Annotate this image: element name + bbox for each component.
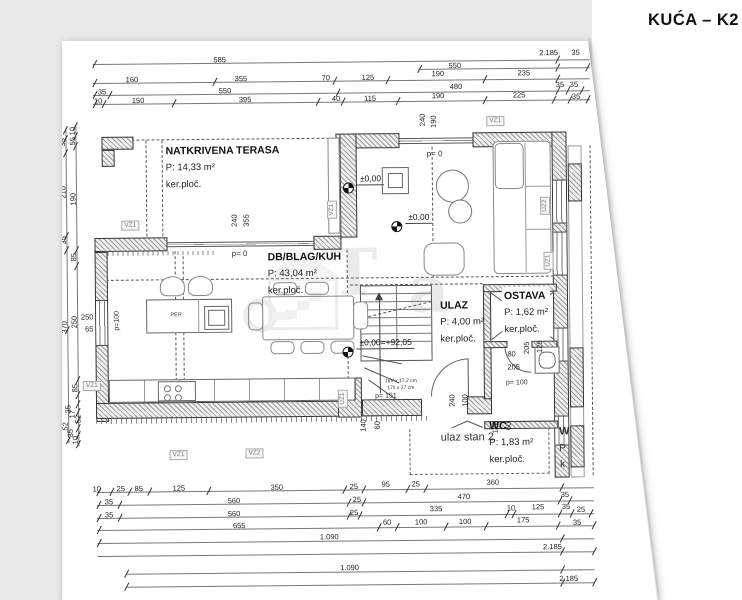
- dim-label: 95: [48, 254, 57, 262]
- room-area: P: 14,33 m²: [166, 160, 280, 178]
- dim-label: 355: [242, 214, 251, 227]
- door-leaf: [468, 358, 469, 396]
- wall-segment: [569, 347, 584, 407]
- dim-label: 40: [332, 94, 340, 103]
- dim-label: 25: [350, 508, 358, 517]
- room-name: NATKRIVENA TERASA: [165, 141, 279, 160]
- stove-burner: [164, 394, 171, 401]
- dim-tick: [43, 484, 48, 492]
- dim-label: 35: [556, 80, 564, 89]
- dining-table: [262, 296, 354, 341]
- dim-label: 190: [432, 91, 445, 100]
- dim-label: 100: [415, 517, 428, 526]
- dim-label: 125: [362, 73, 375, 82]
- dim-label: 240: [418, 114, 427, 127]
- annotation: 16V x 17,2 cm: [385, 378, 417, 384]
- drawing-page: T a 5852.1853555016035570125190235355504…: [0, 0, 742, 600]
- room-name: WC: [489, 417, 533, 436]
- dining-chair: [248, 302, 263, 330]
- stove-burner: [175, 394, 182, 401]
- dim-label: 160: [126, 75, 139, 84]
- dimension-line: [97, 500, 594, 506]
- dim-label: 175: [517, 515, 530, 524]
- annotation: p= 0: [427, 149, 443, 158]
- dim-label: 25: [353, 495, 361, 504]
- dim-tick: [54, 395, 59, 403]
- dimension-line: [97, 551, 594, 557]
- dim-label: 140: [359, 419, 368, 432]
- dimension-line: [93, 78, 590, 84]
- room-area: P: 1,83 m²: [489, 435, 533, 452]
- dimension-line: [97, 538, 594, 544]
- dim-label: 70: [322, 73, 330, 82]
- dim-label: 35: [571, 48, 579, 57]
- dim-label: 85: [70, 384, 79, 392]
- dimension-line: [93, 59, 590, 65]
- dim-label: 180: [36, 197, 45, 210]
- dim-tick: [40, 126, 45, 134]
- sofa-chaise: [495, 143, 524, 189]
- dim-label: 150: [132, 96, 145, 105]
- annotation: ulaz stan 2: [441, 431, 494, 444]
- dashed-line: [161, 140, 163, 236]
- dim-label: 125: [173, 484, 186, 493]
- footing-ticks: [108, 251, 216, 256]
- dimension-line: [65, 128, 69, 443]
- dim-label: 190: [432, 69, 445, 78]
- dim-label: 65: [85, 325, 93, 334]
- dim-label: 360: [486, 478, 499, 487]
- bar-stool: [188, 276, 213, 296]
- dim-label: 355: [235, 74, 248, 83]
- dim-label: 10: [71, 436, 80, 444]
- room-label: OSTAVAP: 1,62 m²ker.ploč.: [502, 287, 550, 339]
- dim-label: 35: [562, 502, 570, 511]
- dim-label: 550: [448, 61, 461, 70]
- dim-label: 205: [522, 342, 531, 355]
- dim-label: 10: [94, 96, 102, 105]
- room-floor: ker.ploč.: [440, 331, 484, 348]
- annotation: p= 0: [232, 249, 248, 258]
- stove-burner: [164, 385, 171, 392]
- dim-tick: [53, 208, 58, 216]
- wall-segment: [101, 137, 133, 150]
- dim-tick: [32, 486, 37, 494]
- room-floor: ker.ploč.: [268, 283, 342, 300]
- room-label: ULAZP: 4,00 m²ker.ploč.: [440, 296, 484, 348]
- dining-chair: [353, 301, 368, 329]
- window-opening: [96, 300, 107, 346]
- elevation-label: ±0,00=+92,05: [356, 337, 415, 350]
- dim-label: 225: [513, 90, 526, 99]
- dim-tick: [592, 547, 597, 555]
- dining-chair: [270, 341, 294, 354]
- wall-segment: [362, 399, 422, 417]
- fireplace-inner: [388, 173, 403, 188]
- dimension-line: [42, 128, 46, 492]
- dimension-line: [31, 131, 35, 493]
- dim-label: 250: [81, 313, 94, 322]
- room-name: OSTAVA: [504, 287, 548, 306]
- floor-plan: T a 5852.1853555016035570125190235355504…: [0, 0, 742, 600]
- dim-label: 10: [93, 484, 101, 493]
- room-label: WCP: 1,83 m²ker.ploč.: [489, 417, 533, 469]
- annotation: PER: [170, 312, 181, 318]
- dim-label: 2.185: [559, 574, 578, 583]
- room-area: P: 43,04 m²: [268, 266, 342, 283]
- coffee-table: [436, 169, 469, 202]
- wall-segment: [568, 163, 582, 201]
- dim-label: 550: [219, 86, 232, 95]
- dim-label: 2.185: [539, 48, 558, 57]
- wall-type-tag: UZ1: [543, 251, 553, 269]
- annotation: k: [560, 459, 565, 470]
- dim-label: 240: [447, 394, 456, 407]
- dim-tick: [29, 127, 34, 135]
- dim-label: 64: [35, 148, 44, 156]
- wall-type-tag: UZ1: [338, 389, 348, 407]
- elevation-marker: [342, 347, 353, 358]
- dim-tick: [592, 521, 597, 529]
- dim-label: 492: [37, 332, 46, 345]
- wall-type-tag: UZ2: [540, 196, 550, 214]
- wall-segment: [94, 237, 167, 252]
- annotation: p=100: [114, 311, 121, 331]
- wall-segment: [570, 425, 584, 467]
- dim-label: 52: [74, 415, 83, 423]
- dim-label: 80: [507, 349, 515, 358]
- window-glazing: [399, 137, 472, 144]
- stove-burner: [175, 385, 182, 392]
- dim-label: 1.090: [320, 532, 339, 541]
- stair-arrowhead: [375, 292, 383, 300]
- wall-type-tag: VZ1: [83, 381, 101, 391]
- dim-label: 55: [68, 137, 77, 145]
- window-opening: [553, 179, 566, 223]
- dim-label: 100: [460, 394, 469, 407]
- elevation-label: ±0,00: [357, 173, 384, 185]
- room-floor: ker.ploč.: [166, 176, 280, 194]
- dim-label: 100: [459, 517, 472, 526]
- room-floor: ker.ploč.: [504, 322, 548, 339]
- dim-label: 240: [230, 214, 239, 227]
- room-label: NATKRIVENA TERASAP: 14,33 m²ker.ploč.: [165, 141, 279, 194]
- dim-label: 85: [135, 484, 143, 493]
- entry-arrow-left: [451, 421, 467, 429]
- dim-tick: [41, 196, 46, 204]
- sink-basin: [208, 310, 225, 326]
- dim-label: 35: [58, 138, 67, 146]
- page-title: KUĆA – K2: [648, 11, 739, 30]
- dim-label: 115: [364, 94, 376, 103]
- dim-label: 60: [383, 518, 391, 527]
- dimension-line: [127, 582, 595, 587]
- dim-label: 250: [70, 316, 79, 329]
- dim-label: 737: [25, 281, 34, 294]
- dashed-line: [590, 145, 594, 475]
- dim-label: 235: [518, 68, 531, 77]
- dim-label: 35: [561, 490, 569, 499]
- dim-label: 560: [228, 509, 241, 518]
- annotation: p= 151: [375, 393, 397, 400]
- room-area: P: 4,00 m²: [440, 315, 484, 332]
- dim-tick: [52, 163, 57, 171]
- elevation-marker: [391, 221, 402, 232]
- room-area: P: 1,62 m²: [504, 305, 548, 322]
- dim-tick: [52, 126, 57, 134]
- dim-label: 655: [233, 521, 246, 530]
- wall-segment: [102, 150, 115, 167]
- room-name: ULAZ: [440, 296, 484, 315]
- window-opening: [553, 231, 566, 275]
- dashed-line: [101, 138, 339, 141]
- dim-tick: [592, 578, 597, 586]
- dim-label: 35: [105, 510, 113, 519]
- dim-label: 25: [577, 505, 585, 514]
- entry-arrow-right: [467, 420, 483, 427]
- dim-label: 35: [59, 236, 68, 244]
- coffee-table: [448, 199, 472, 223]
- dim-label: 370: [60, 321, 69, 334]
- dim-label: 60: [373, 421, 382, 429]
- annotation: 17š x 27 cm: [387, 385, 414, 391]
- dim-label: 25: [412, 479, 420, 488]
- armchair: [423, 242, 464, 275]
- dim-label: 125: [535, 340, 544, 353]
- dimension-line: [54, 128, 58, 402]
- dim-label: 25: [350, 482, 358, 491]
- dim-label: 190: [429, 115, 438, 128]
- dim-label: 35: [570, 80, 578, 89]
- dim-label: 95: [49, 395, 58, 403]
- screenshot-canvas: T a 5852.1853555016035570125190235355504…: [0, 0, 742, 600]
- dim-label: 95: [382, 480, 390, 489]
- washbasin-bowl: [539, 352, 556, 369]
- elevation-label: ±0,00: [405, 212, 432, 224]
- wall-type-tag: VZ1: [121, 221, 139, 231]
- room-floor: ker.ploč.: [489, 452, 533, 469]
- dim-label: 35: [105, 497, 113, 506]
- dim-label: 190: [68, 193, 77, 206]
- wall-type-tag: VZ1: [327, 201, 337, 219]
- dim-label: 395: [239, 95, 252, 104]
- room-name: DB/BLAG/KUH: [268, 248, 342, 267]
- wall-type-tag: VZ2: [245, 448, 263, 458]
- dim-label: 350: [271, 483, 284, 492]
- dim-label: 335: [430, 504, 443, 513]
- dim-tick: [40, 153, 45, 161]
- door-arc-entry: [431, 358, 469, 396]
- room-label: DB/BLAG/KUHP: 43,04 m²ker.ploč.: [268, 248, 342, 300]
- partition-strip: [327, 138, 340, 234]
- dimension-line: [127, 569, 595, 574]
- kitchen-counter: [109, 378, 356, 403]
- dim-label: 25: [117, 484, 125, 493]
- wall-type-tag: VZ1: [169, 450, 187, 460]
- bar-stool: [160, 276, 185, 296]
- dim-label: 10: [507, 503, 515, 512]
- annotation: W: [559, 425, 570, 437]
- dim-label: 585: [213, 55, 226, 64]
- dim-label: 35: [573, 518, 581, 527]
- annotation: p= 100: [506, 379, 528, 386]
- wall-type-tag: VZ1: [486, 116, 504, 126]
- dim-label: 2.185: [543, 542, 562, 551]
- dim-label: 470: [458, 492, 471, 501]
- dim-label: 35: [98, 87, 106, 96]
- elevation-marker: [343, 183, 354, 194]
- dim-label: 205: [507, 362, 520, 371]
- dining-chair: [300, 341, 324, 354]
- dim-tick: [53, 254, 58, 262]
- dim-label: 1.090: [340, 563, 359, 572]
- dim-label: 480: [450, 82, 463, 91]
- dim-label: 210: [58, 186, 67, 199]
- sliding-door-glazing: [167, 241, 313, 247]
- dim-label: 125: [532, 502, 545, 511]
- page-shadow-wrap: T a 5852.1853555016035570125190235355504…: [0, 0, 742, 600]
- dimension-line: [97, 525, 594, 531]
- dim-label: 244: [47, 180, 56, 193]
- annotation: P: [559, 443, 566, 454]
- dashed-line: [145, 140, 147, 236]
- dim-label: 10: [68, 127, 77, 135]
- dim-label: 560: [228, 496, 241, 505]
- dim-label: 85: [69, 253, 78, 261]
- dim-label: 35: [572, 92, 580, 101]
